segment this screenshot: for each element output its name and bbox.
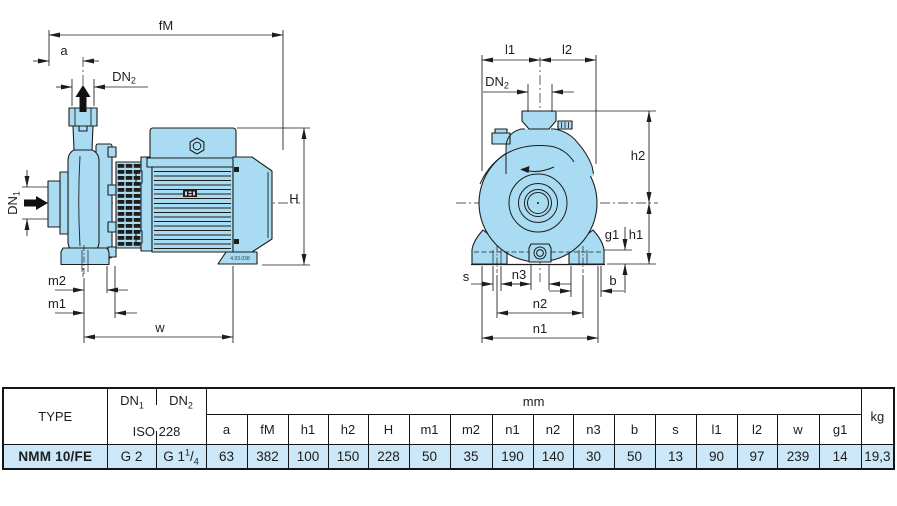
label-fM: fM [159,18,173,33]
center-dot [537,202,539,204]
col-header-n1: n1 [492,415,533,445]
label-n2: n2 [533,296,547,311]
cell-type: NMM 10/FE [3,445,107,469]
motor-nameplate [183,190,197,197]
col-header-iso: ISO 228 [108,424,206,439]
col-header-n2: n2 [533,415,573,445]
label-dn1-side: DN1 [5,191,22,215]
cell-fM: 382 [247,445,288,469]
terminal-box-base [147,158,239,167]
cell-w: 239 [777,445,819,469]
label-l1: l1 [505,42,515,57]
label-H: H [289,191,298,206]
col-header-dn2: DN2 [157,389,206,408]
cell-a: 63 [206,445,247,469]
terminal-box-bolt [190,138,204,154]
label-dn2-side: DN2 [112,69,136,86]
col-header-h2: h2 [328,415,368,445]
drawing-number: 4.93.038 [230,256,250,262]
cell-l1: 90 [696,445,737,469]
cell-n3: 30 [573,445,614,469]
bracket-rib-hatch [117,164,141,246]
col-header-s: s [655,415,696,445]
cell-dn2: G 11/4 [156,445,206,469]
casing-bolt-tab [108,185,116,195]
col-header-mm: mm [206,388,861,415]
dim-m1 [55,266,137,318]
label-g1: g1 [605,227,619,242]
label-n3: n3 [512,267,526,282]
dn-headers: DN1 DN2 [108,389,206,408]
volute-casing [68,150,99,252]
col-header-H: H [368,415,409,445]
discharge-tab [79,126,87,131]
suction-flow-arrow-icon [24,196,48,210]
cell-n1: 190 [492,445,533,469]
cell-b: 50 [614,445,655,469]
col-header-dn1: DN1 [108,389,157,408]
casing-foot [61,248,109,265]
label-b: b [609,273,616,288]
motor-bolt [234,239,239,244]
col-header-l1: l1 [696,415,737,445]
col-header-type: TYPE [3,388,107,445]
cell-l2: 97 [737,445,777,469]
cell-n2: 140 [533,445,573,469]
label-l2: l2 [562,42,572,57]
cell-g1: 14 [819,445,861,469]
label-h2: h2 [631,148,645,163]
cell-m1: 50 [409,445,450,469]
col-header-kg: kg [861,388,894,445]
suction-flange [48,181,60,227]
cell-h1: 100 [288,445,328,469]
label-s: s [463,269,470,284]
col-header-a: a [206,415,247,445]
col-header-dn-iso: DN1 DN2 ISO 228 [107,388,206,445]
col-header-fM: fM [247,415,288,445]
cell-dn1: G 2 [107,445,156,469]
dn-divider-bottom [156,431,157,444]
cell-H: 228 [368,445,409,469]
col-header-b: b [614,415,655,445]
plug-boss-step [495,129,507,133]
label-w: w [154,320,165,335]
col-header-h1: h1 [288,415,328,445]
label-dn2-front: DN2 [485,74,509,91]
discharge-port [522,111,556,129]
pump-front-body [472,111,604,264]
pump-dimension-drawings: 4.93.038 [0,0,897,380]
cell-kg: 19,3 [861,445,894,469]
cell-m2: 35 [450,445,492,469]
col-header-w: w [777,415,819,445]
side-view: 4.93.038 [5,18,310,343]
suction-hub [60,172,68,234]
dimensions-table: TYPE DN1 DN2 ISO 228 mm kg a fM h1 h2 H … [2,387,895,470]
col-header-l2: l2 [737,415,777,445]
casing-bolt-tab [108,147,116,157]
label-h1: h1 [629,227,643,242]
cell-h2: 150 [328,445,368,469]
table-row: NMM 10/FE G 2 G 11/4 63 382 100 150 228 … [3,445,894,469]
dn-iso-cell: DN1 DN2 ISO 228 [108,389,206,444]
casing-bolt-tab [108,222,116,232]
label-a: a [60,43,68,58]
col-header-g1: g1 [819,415,861,445]
plug-boss [492,133,510,144]
label-n1: n1 [533,321,547,336]
front-view: l1 l2 DN2 h2 h1 g1 s n3 b n2 n1 [456,42,658,343]
col-header-m2: m2 [450,415,492,445]
cell-s: 13 [655,445,696,469]
col-header-n3: n3 [573,415,614,445]
label-m1: m1 [48,296,66,311]
dn-divider-top [156,389,157,405]
motor-flange [141,157,152,251]
motor-bolt [234,167,239,172]
label-m2: m2 [48,273,66,288]
col-header-m1: m1 [409,415,450,445]
catalog-dimension-page: 4.93.038 [0,0,897,506]
